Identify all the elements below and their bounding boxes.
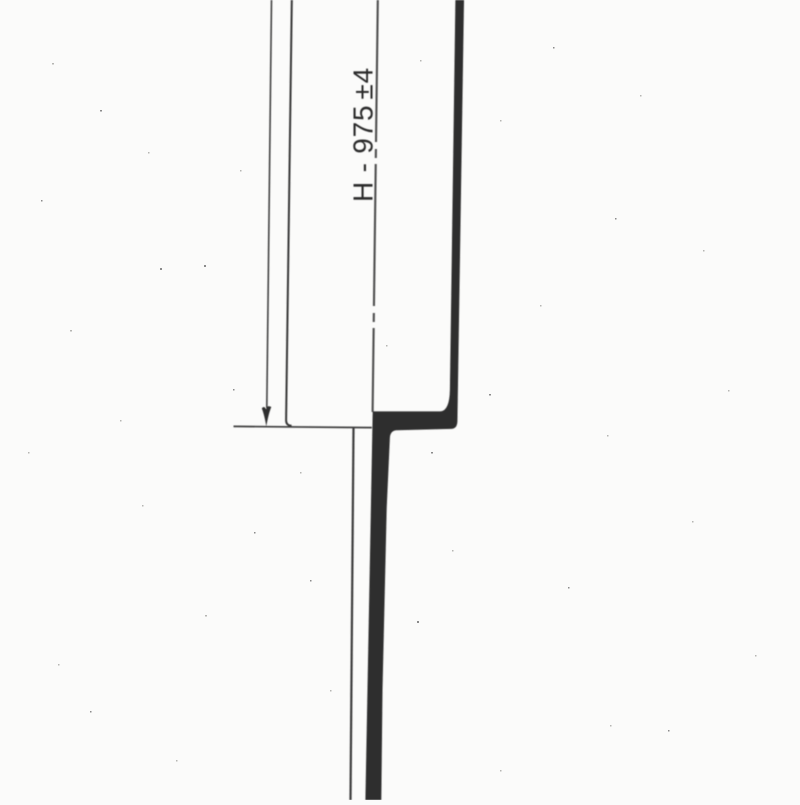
svg-text:H - 975±4: H - 975±4 [348,67,379,202]
